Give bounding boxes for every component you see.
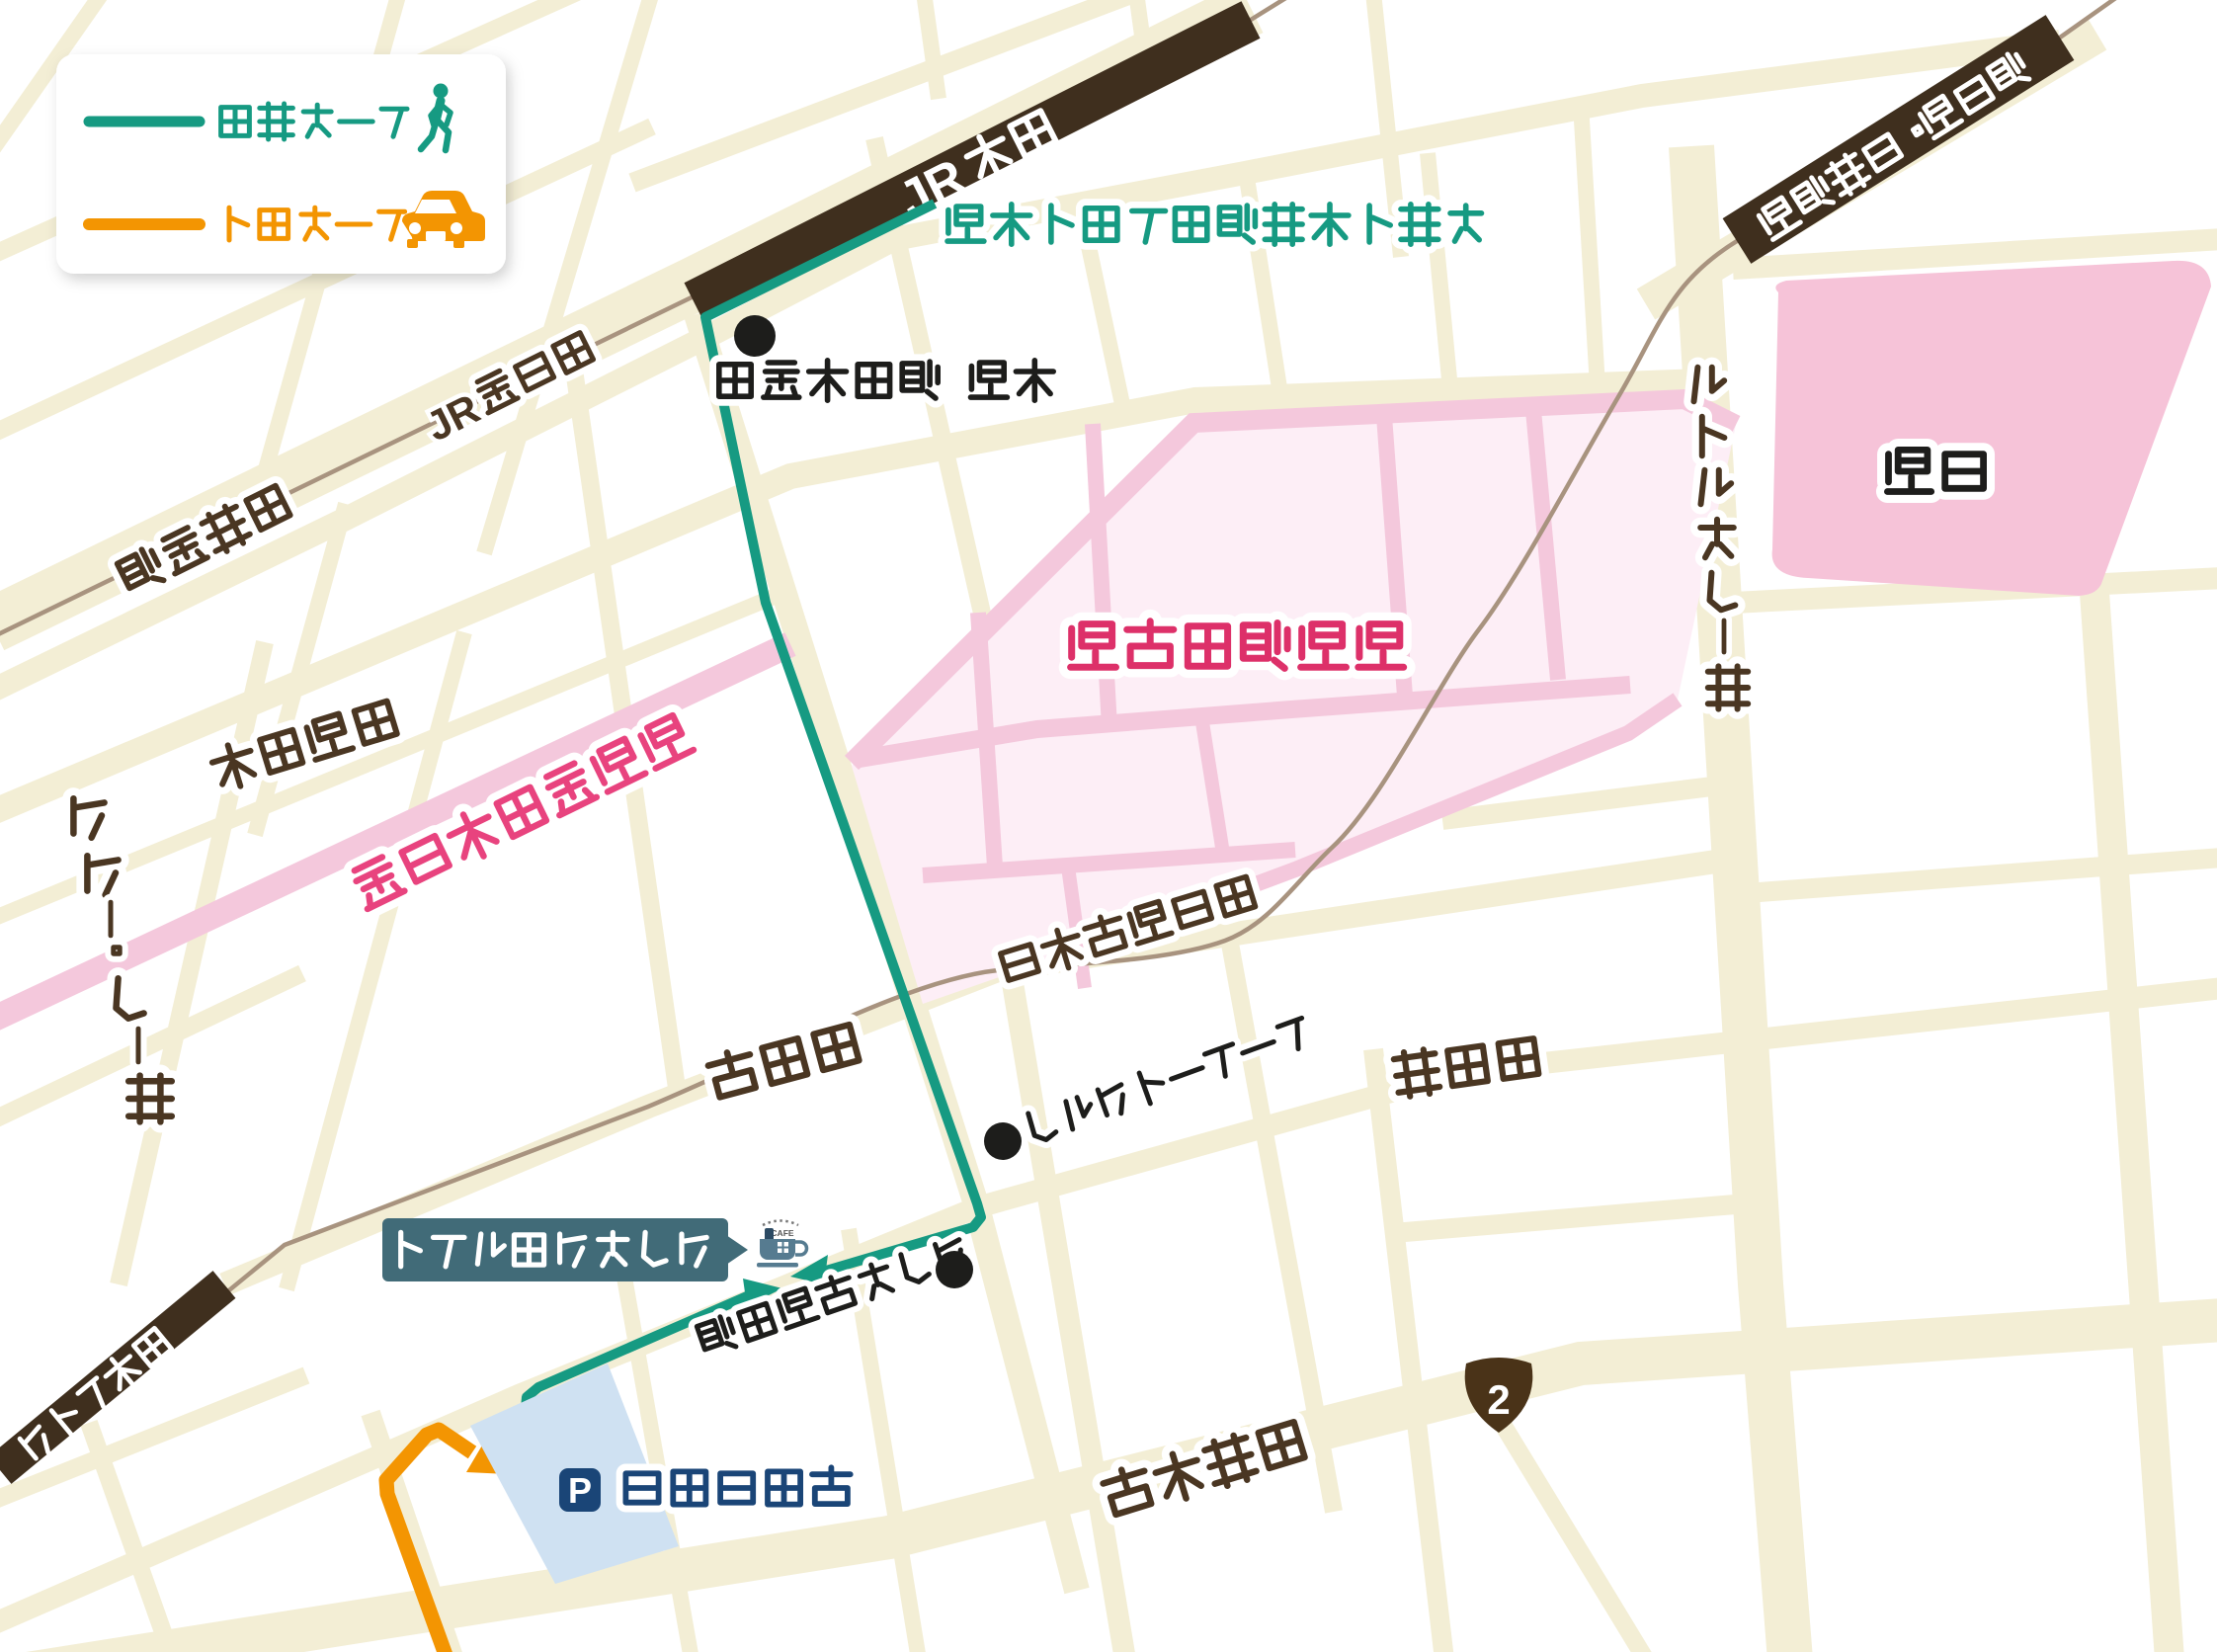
svg-text:2: 2: [1487, 1376, 1510, 1423]
svg-text:P: P: [568, 1470, 592, 1511]
svg-text:CAFE: CAFE: [771, 1228, 793, 1238]
